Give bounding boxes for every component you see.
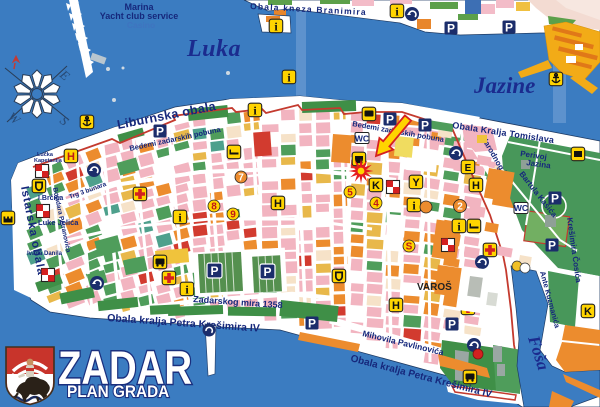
svg-text:P: P	[448, 318, 456, 332]
svg-text:P: P	[505, 21, 513, 35]
svg-text:PLAN GRADA: PLAN GRADA	[67, 384, 170, 402]
svg-text:P: P	[308, 317, 316, 331]
svg-text:P: P	[447, 22, 455, 36]
svg-text:Y: Y	[412, 177, 420, 189]
svg-text:7: 7	[238, 173, 244, 184]
svg-text:H: H	[392, 300, 400, 312]
svg-text:WC: WC	[355, 134, 369, 144]
svg-text:Ivana Danila: Ivana Danila	[27, 251, 63, 257]
svg-text:Casino: Casino	[127, 20, 155, 30]
svg-text:8: 8	[211, 202, 217, 213]
svg-text:P: P	[210, 264, 218, 278]
svg-text:4: 4	[373, 199, 379, 210]
svg-text:P: P	[548, 239, 556, 253]
svg-text:H: H	[67, 151, 75, 163]
svg-text:2: 2	[457, 202, 463, 213]
svg-text:Jazine: Jazine	[473, 73, 535, 98]
svg-text:P: P	[263, 265, 271, 279]
svg-text:9: 9	[230, 210, 236, 221]
svg-text:E: E	[465, 163, 472, 174]
svg-text:Luka: Luka	[186, 36, 241, 62]
svg-text:P: P	[156, 125, 164, 139]
svg-text:WC: WC	[514, 203, 528, 213]
svg-text:K: K	[584, 306, 592, 318]
svg-text:K: K	[372, 180, 380, 192]
svg-text:P: P	[421, 119, 429, 133]
svg-text:H: H	[472, 180, 480, 192]
svg-text:Kapetanija: Kapetanija	[34, 158, 63, 164]
svg-text:P: P	[551, 192, 559, 206]
svg-text:5: 5	[347, 188, 353, 199]
svg-text:S: S	[406, 242, 413, 253]
svg-text:P: P	[386, 113, 394, 127]
svg-text:H: H	[274, 198, 282, 210]
svg-text:VAROŠ: VAROŠ	[417, 280, 452, 293]
